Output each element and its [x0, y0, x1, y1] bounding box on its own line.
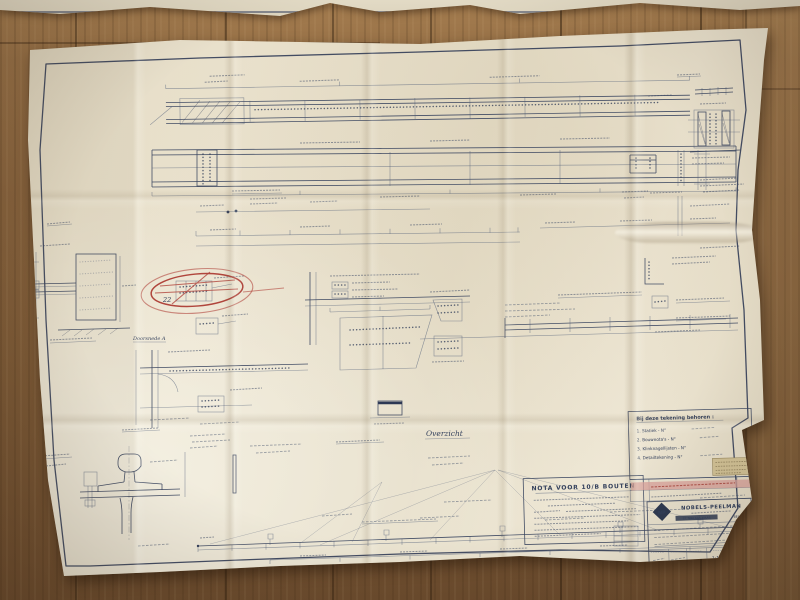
red-pencil-annotation: 22	[139, 264, 284, 318]
drawing-linework: 22	[0, 0, 800, 600]
logo-monogram: NP	[658, 510, 666, 516]
company-location: ST. NIKLAAS-WAAS	[682, 516, 710, 521]
parts-table	[614, 526, 638, 546]
top-beam-elevation	[150, 70, 690, 125]
photo-of-technical-drawing: 22	[0, 0, 800, 600]
center-connection-details	[305, 272, 470, 370]
behoren-item-3: 3. Klinknagellijsten - N°	[637, 445, 686, 451]
section-a-label: Doorsnede A	[132, 336, 166, 342]
company-country: BELGIË	[733, 513, 745, 518]
drawing-sheet: 22	[0, 0, 800, 600]
overview-section: Overzicht	[250, 401, 470, 465]
fold-curl-right-flap	[615, 222, 765, 244]
section-a-drawing: Doorsnede A	[132, 336, 308, 428]
top-right-connection-details	[648, 74, 740, 164]
behoren-item-1: 1. Statiek - N°	[637, 428, 667, 434]
drawing-number: 11513-A1	[719, 553, 749, 562]
concrete-anchor-detail	[33, 222, 136, 343]
main-beam-drawing	[152, 138, 736, 199]
title-block: NP NOBELS-PEELMAN ST. NIKLAAS-WAAS BELGI…	[647, 498, 753, 566]
company-name: NOBELS-PEELMAN	[681, 504, 741, 512]
small-detail-below-annotation	[196, 314, 248, 334]
nobels-peelman-logo: NP	[652, 502, 671, 521]
behoren-item-2: 2. Bouwnota's - N°	[637, 436, 676, 442]
red-note-text: 22	[162, 296, 171, 304]
crane-rail-section	[42, 428, 236, 546]
overview-label: Overzicht	[426, 429, 464, 438]
behoren-item-4: 4. Detailtekening - N°	[637, 454, 682, 460]
scale-value: 1:10	[712, 555, 722, 561]
